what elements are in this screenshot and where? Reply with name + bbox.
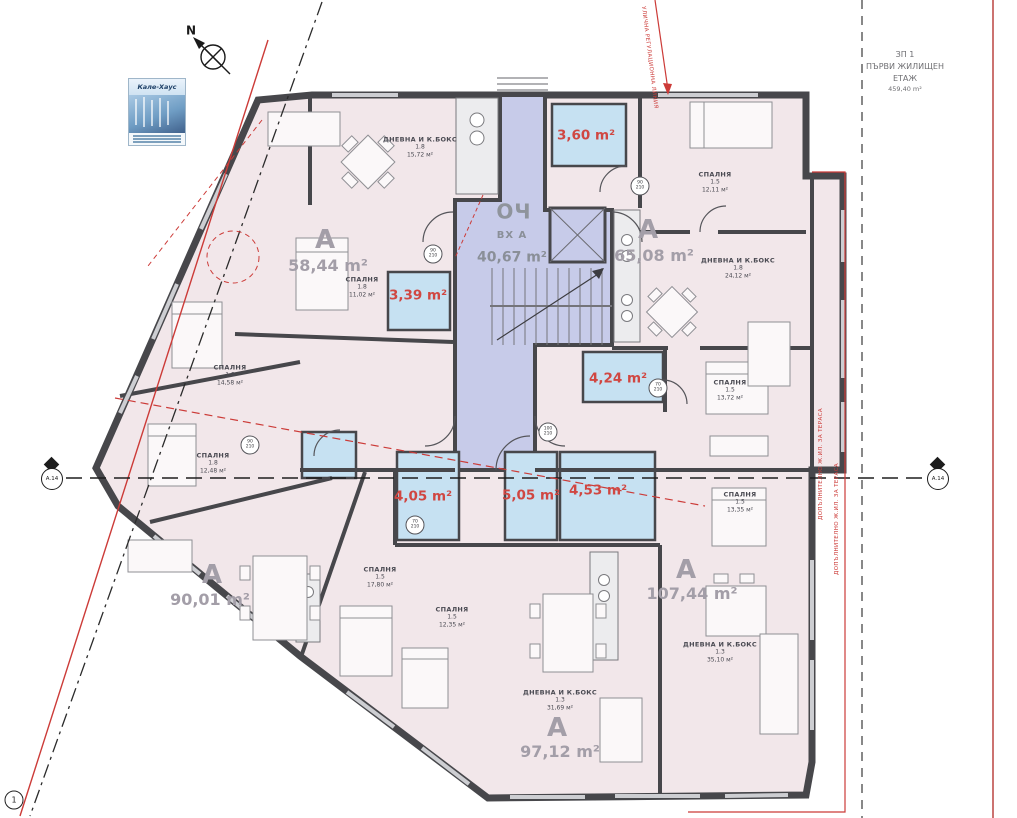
sheet-title-line1: ПЪРВИ ЖИЛИЩЕН xyxy=(866,61,944,73)
door-size-marker: 90210 xyxy=(241,436,260,455)
room-label: СПАЛНЯ 1.5 13,35 м² xyxy=(724,490,757,513)
door-size-marker: 70210 xyxy=(406,516,425,535)
sheet-code: ЗП 1 xyxy=(866,49,944,61)
apartment-letter: А xyxy=(202,559,222,592)
north-label: N xyxy=(186,24,196,39)
section-marker-left: А.14 xyxy=(40,459,64,493)
bathroom-area-label: 4,24 m² xyxy=(589,371,647,388)
door-size-marker: 90210 xyxy=(424,245,443,264)
room-label: СПАЛНЯ 1.5 13,72 м² xyxy=(714,378,747,401)
apartment-letter: А xyxy=(315,224,335,257)
apartment-area: 107,44 m² xyxy=(647,584,738,604)
apartment-area: 65,08 m² xyxy=(614,246,694,266)
room-label: ДНЕВНА И К.БОКС 1.8 24,12 м² xyxy=(701,256,775,279)
room-label: СПАЛНЯ 1.8 12,48 м² xyxy=(197,451,230,474)
floor-plan-page: ЗП 1 ПЪРВИ ЖИЛИЩЕН ЕТАЖ 459,40 m² N Кале… xyxy=(0,0,1017,818)
room-label: СПАЛНЯ 1.5 12,35 м² xyxy=(436,605,469,628)
bathroom-area-label: 5,05 m² xyxy=(502,488,560,505)
hall-code-label: ОЧ xyxy=(496,200,531,225)
room-label: ДНЕВНА И К.БОКС 1.3 35,10 м² xyxy=(683,640,757,663)
door-size-marker: 100210 xyxy=(539,423,558,442)
sheet-area: 459,40 m² xyxy=(866,85,944,95)
bathroom-area-label: 4,53 m² xyxy=(569,483,627,500)
company-logo: Кале-Хаус xyxy=(128,78,186,146)
terrace-note-outer: ДОПЪЛНИТЕЛНО Ж.ИЛ. ЗА ТЕРАСА xyxy=(834,463,840,575)
bathroom-area-label: 4,05 m² xyxy=(394,489,452,506)
street-regulation-line xyxy=(655,0,668,90)
apartment-letter: А xyxy=(547,712,567,745)
room-label: СПАЛНЯ 1.8 11,02 м² xyxy=(346,275,379,298)
sheet-title-line2: ЕТАЖ xyxy=(866,73,944,85)
room-label: СПАЛНЯ 1.5 17,80 м² xyxy=(364,565,397,588)
room-label: СПАЛНЯ 1.8 14,58 м² xyxy=(214,363,247,386)
grid-marker: 1 xyxy=(5,791,24,810)
terrace-note-inner: ДОПЪЛНИТЕЛНО Ж.ИЛ. ЗА ТЕРАСА xyxy=(818,408,824,520)
room-label: ДНЕВНА И К.БОКС 1.8 15,72 м² xyxy=(383,135,457,158)
entrance-steps xyxy=(497,78,548,90)
bathroom-area-label: 3,39 m² xyxy=(389,288,447,305)
sheet-note: ЗП 1 ПЪРВИ ЖИЛИЩЕН ЕТАЖ 459,40 m² xyxy=(866,49,944,95)
apartment-area: 58,44 m² xyxy=(288,256,368,276)
logo-title: Кале-Хаус xyxy=(137,83,176,91)
hall-area-label: 40,67 m² xyxy=(477,249,547,267)
apartment-letter: А xyxy=(676,554,696,587)
door-size-marker: 90210 xyxy=(631,177,650,196)
bathroom-area-label: 3,60 m² xyxy=(557,128,615,145)
logo-caption-bars xyxy=(129,133,185,145)
hall-entrance-label: ВХ А xyxy=(497,230,528,243)
apartment-area: 97,12 m² xyxy=(520,742,600,762)
room-label: СПАЛНЯ 1.5 12,11 м² xyxy=(699,170,732,193)
apartment-letter: А xyxy=(638,214,658,247)
door-size-marker: 70210 xyxy=(649,379,668,398)
elevator xyxy=(550,208,605,262)
north-arrow-icon xyxy=(193,37,230,74)
apartment-area: 90,01 m² xyxy=(170,590,250,610)
room-label: ДНЕВНА И К.БОКС 1.3 31,69 м² xyxy=(523,688,597,711)
logo-photo xyxy=(129,95,185,133)
logo-roof: Кале-Хаус xyxy=(129,79,185,95)
section-marker-right: А.14 xyxy=(926,459,950,493)
